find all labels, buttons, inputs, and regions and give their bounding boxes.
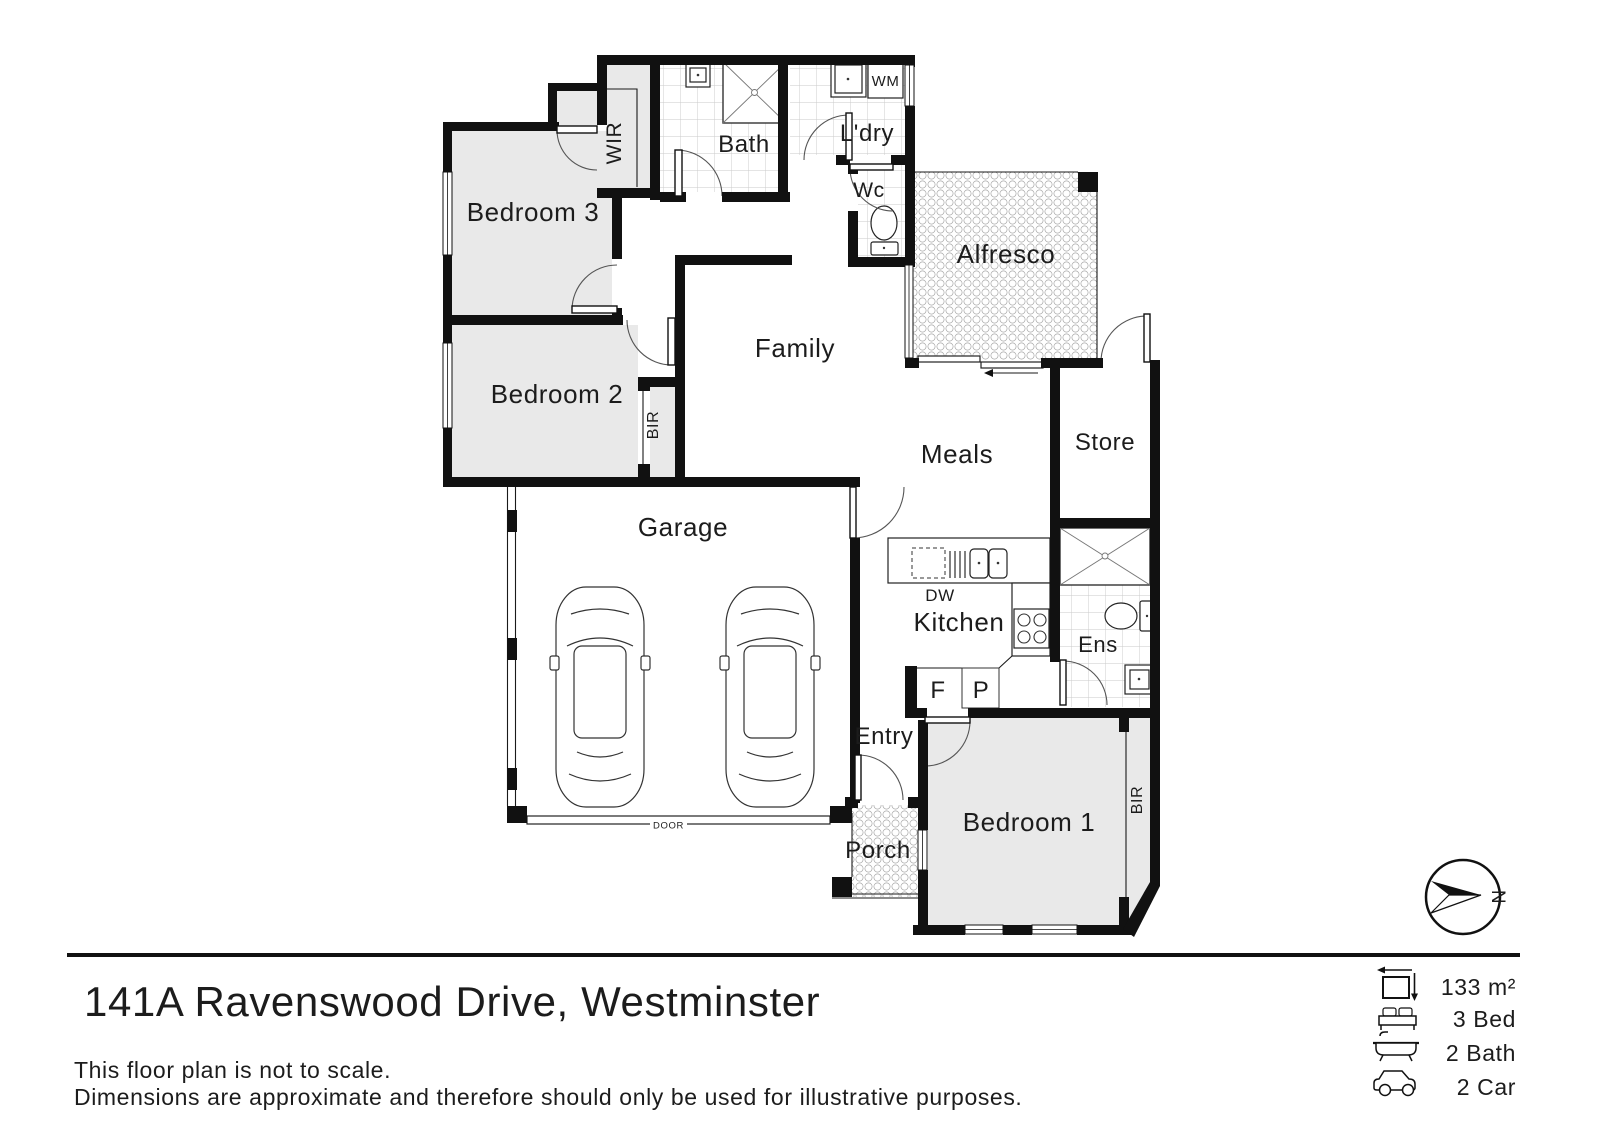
bath-shower-icon: [723, 62, 786, 123]
car-1: [550, 587, 650, 807]
fixture-label-fridge: F: [930, 677, 945, 704]
north-label: N: [1487, 890, 1508, 904]
room-label-bedroom1: Bedroom 1: [963, 807, 1096, 837]
room-label-bedroom2: Bedroom 2: [491, 379, 624, 409]
room-label-garage: Garage: [638, 512, 728, 542]
room-label-wc: Wc: [853, 179, 885, 202]
wc-toilet-icon: [871, 206, 898, 255]
stat-floor-area: 133 m²: [1441, 974, 1516, 1000]
ensuite-basin-icon: [1125, 665, 1154, 694]
room-label-bir-bedroom2: BIR: [645, 411, 662, 439]
page-background: [0, 0, 1600, 1130]
floor-plan-canvas: Bedroom 3 Bedroom 2 Bedroom 1 WIR Bath L…: [0, 0, 1600, 1130]
disclaimer-line1: This floor plan is not to scale.: [74, 1057, 391, 1083]
garage-door-label: DOOR: [650, 819, 687, 832]
fixture-label-wm: WM: [872, 73, 900, 90]
footer-divider: [67, 953, 1520, 957]
stat-beds: 3 Bed: [1453, 1006, 1516, 1032]
room-label-bir-bedroom1: BIR: [1129, 786, 1146, 814]
fixture-label-dw: DW: [925, 586, 955, 605]
bath-basin-icon: [686, 64, 710, 87]
room-label-meals: Meals: [921, 439, 993, 469]
disclaimer-line2: Dimensions are approximate and therefore…: [74, 1084, 1022, 1110]
room-label-ensuite: Ens: [1078, 632, 1118, 657]
room-label-laundry: L'dry: [840, 120, 894, 147]
room-label-store: Store: [1075, 429, 1135, 456]
room-label-kitchen: Kitchen: [914, 607, 1005, 637]
property-address: 141A Ravenswood Drive, Westminster: [84, 978, 820, 1025]
room-label-family: Family: [755, 333, 835, 363]
ensuite-toilet-icon: [1105, 601, 1154, 631]
fixture-label-door: DOOR: [653, 821, 684, 832]
ensuite-shower-icon: [1060, 528, 1150, 585]
fixture-label-pantry: P: [973, 677, 990, 704]
stat-cars: 2 Car: [1457, 1074, 1516, 1100]
car-2: [720, 587, 820, 807]
cooktop-icon: [1014, 609, 1049, 648]
stat-baths: 2 Bath: [1446, 1040, 1516, 1066]
room-label-bedroom3: Bedroom 3: [467, 197, 600, 227]
room-label-bath: Bath: [718, 131, 770, 158]
room-label-porch: Porch: [845, 837, 911, 864]
room-label-entry: Entry: [854, 723, 913, 750]
laundry-trough-icon: [831, 61, 866, 97]
room-label-wir: WIR: [603, 122, 626, 165]
floorplan-page: Bedroom 3 Bedroom 2 Bedroom 1 WIR Bath L…: [0, 0, 1600, 1130]
room-label-alfresco: Alfresco: [957, 239, 1056, 269]
